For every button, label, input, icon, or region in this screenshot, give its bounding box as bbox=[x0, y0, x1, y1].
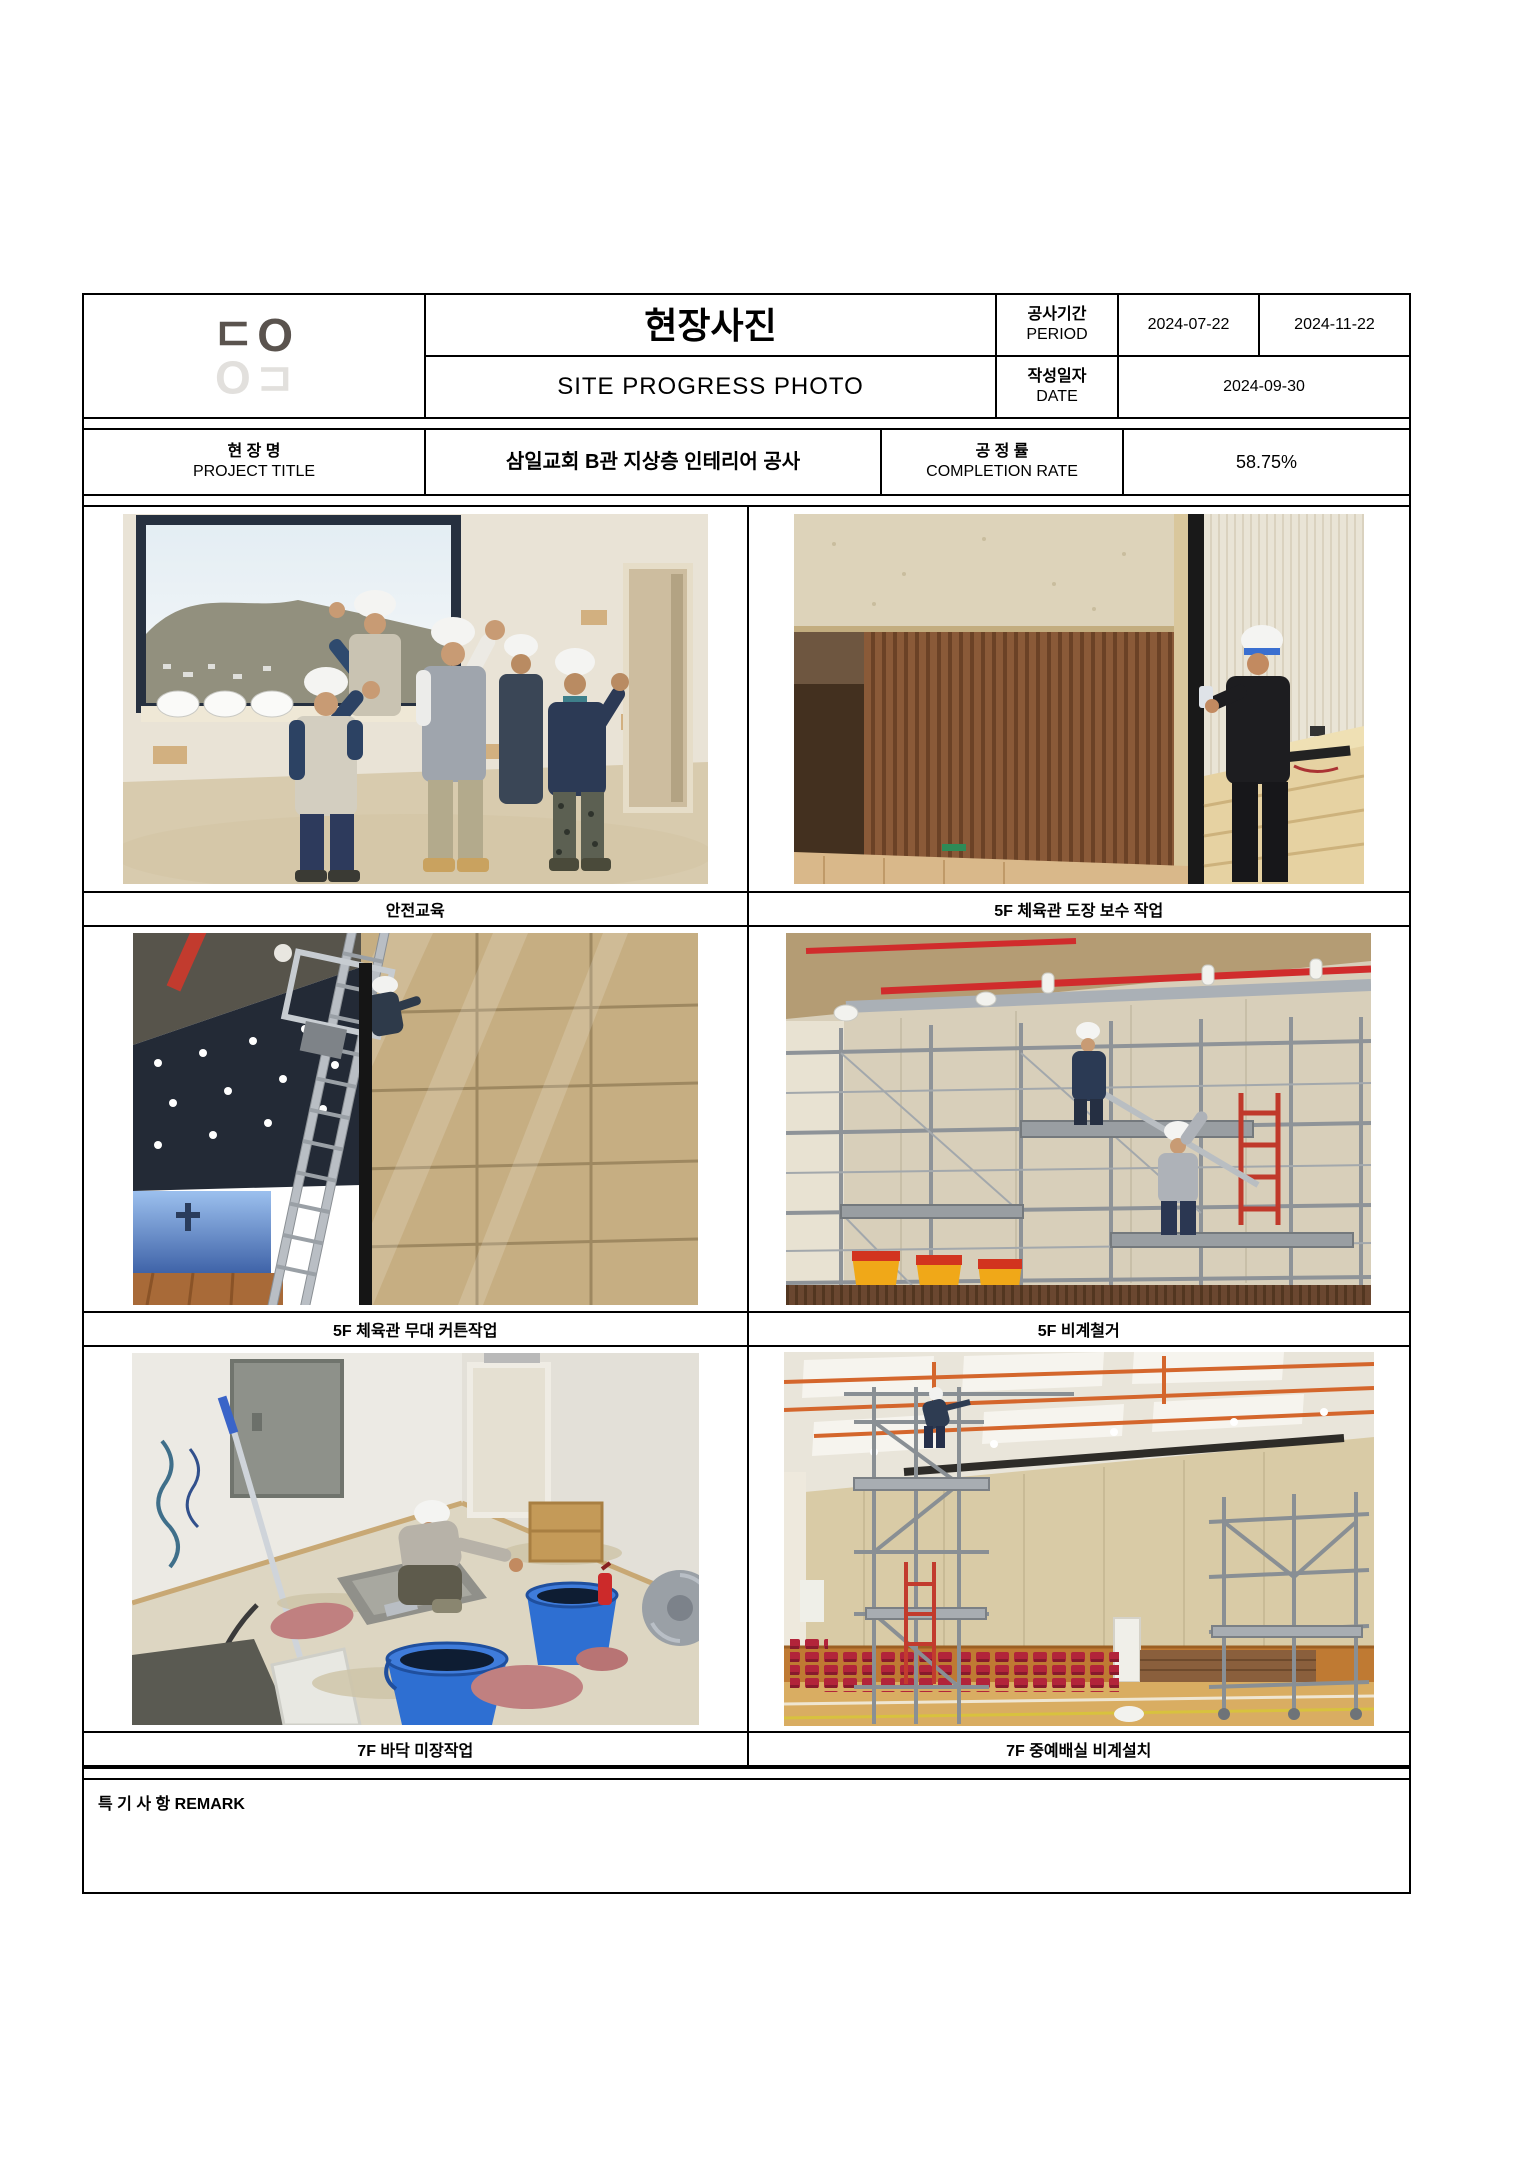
date-label-cell: 작성일자 DATE bbox=[995, 355, 1117, 417]
date-label-ko: 작성일자 bbox=[1028, 367, 1087, 387]
photo-caption: 7F 중예배실 비계설치 bbox=[747, 1733, 1410, 1765]
completion-rate-value: 58.75% bbox=[1236, 451, 1297, 474]
report-date: 2024-09-30 bbox=[1223, 377, 1305, 397]
photo-cell-safety-training bbox=[84, 507, 747, 891]
caption-row-3: 7F 바닥 미장작업 7F 중예배실 비계설치 bbox=[84, 1731, 1409, 1767]
photo-cell-scaffold-install bbox=[747, 1347, 1410, 1731]
photo-cell-floor-plastering bbox=[84, 1347, 747, 1731]
project-title-text: 삼일교회 B관 지상층 인테리어 공사 bbox=[506, 450, 800, 475]
date-label-en: DATE bbox=[1036, 387, 1077, 407]
period-start-cell: 2024-07-22 bbox=[1117, 295, 1258, 355]
project-label-en: PROJECT TITLE bbox=[193, 462, 315, 482]
document-title-english: SITE PROGRESS PHOTO bbox=[424, 355, 995, 417]
completion-label-cell: 공 정 률 COMPLETION RATE bbox=[880, 430, 1122, 494]
site-progress-photo-document: ㄷO ㄷO 현장사진 공사기간 PERIOD 2024-07-22 2024-1… bbox=[0, 0, 1526, 2158]
photo-row-2 bbox=[84, 927, 1409, 1311]
period-label-cell: 공사기간 PERIOD bbox=[995, 295, 1117, 355]
project-label-ko: 현 장 명 bbox=[227, 442, 280, 462]
photo-caption: 7F 바닥 미장작업 bbox=[84, 1733, 747, 1765]
photo-caption: 5F 체육관 도장 보수 작업 bbox=[747, 893, 1410, 925]
caption-row-2: 5F 체육관 무대 커튼작업 5F 비계철거 bbox=[84, 1311, 1409, 1347]
caption-row-1: 안전교육 5F 체육관 도장 보수 작업 bbox=[84, 891, 1409, 927]
double-rule bbox=[84, 494, 1409, 507]
title-en-text: SITE PROGRESS PHOTO bbox=[557, 372, 864, 402]
period-label-en: PERIOD bbox=[1026, 325, 1087, 345]
photo-caption: 5F 비계철거 bbox=[747, 1313, 1410, 1345]
photo-floor-plastering bbox=[132, 1353, 699, 1725]
project-title-cell: 삼일교회 B관 지상층 인테리어 공사 bbox=[424, 430, 880, 494]
photo-scaffold-install bbox=[784, 1352, 1374, 1726]
photo-scaffold-removal bbox=[786, 933, 1371, 1305]
report-header: ㄷO ㄷO 현장사진 공사기간 PERIOD 2024-07-22 2024-1… bbox=[84, 295, 1409, 417]
project-label-cell: 현 장 명 PROJECT TITLE bbox=[84, 430, 424, 494]
report-date-cell: 2024-09-30 bbox=[1117, 355, 1409, 417]
period-end-date: 2024-11-22 bbox=[1294, 315, 1375, 335]
double-rule bbox=[84, 1767, 1409, 1780]
period-label-ko: 공사기간 bbox=[1028, 305, 1087, 325]
photo-caption: 5F 체육관 무대 커튼작업 bbox=[84, 1313, 747, 1345]
photo-stage-curtain-work bbox=[133, 933, 698, 1305]
project-info-row: 현 장 명 PROJECT TITLE 삼일교회 B관 지상층 인테리어 공사 … bbox=[84, 430, 1409, 494]
report-table: ㄷO ㄷO 현장사진 공사기간 PERIOD 2024-07-22 2024-1… bbox=[82, 293, 1411, 1894]
title-ko-text: 현장사진 bbox=[644, 303, 776, 348]
completion-value-cell: 58.75% bbox=[1122, 430, 1409, 494]
photo-cell-stage-curtain bbox=[84, 927, 747, 1311]
document-title-korean: 현장사진 bbox=[424, 295, 995, 355]
photo-row-3 bbox=[84, 1347, 1409, 1731]
period-start-date: 2024-07-22 bbox=[1148, 315, 1230, 335]
completion-label-en: COMPLETION RATE bbox=[926, 462, 1078, 482]
double-rule bbox=[84, 417, 1409, 430]
logo-mark-mirrored: ㄷO bbox=[212, 356, 296, 398]
company-logo: ㄷO ㄷO bbox=[84, 295, 424, 417]
photo-cell-scaffold-removal bbox=[747, 927, 1410, 1311]
photo-cell-gym-painting bbox=[747, 507, 1410, 891]
remark-section: 특 기 사 항 REMARK bbox=[84, 1780, 1409, 1892]
photo-caption: 안전교육 bbox=[84, 893, 747, 925]
period-end-cell: 2024-11-22 bbox=[1258, 295, 1409, 355]
photo-gym-painting-repair bbox=[794, 514, 1364, 884]
photo-safety-training bbox=[123, 514, 708, 884]
completion-label-ko: 공 정 률 bbox=[975, 442, 1028, 462]
photo-row-1 bbox=[84, 507, 1409, 891]
remark-label: 특 기 사 항 REMARK bbox=[98, 1796, 245, 1813]
logo-mark-top: ㄷO bbox=[212, 314, 296, 356]
helmets-on-sill bbox=[157, 691, 293, 717]
